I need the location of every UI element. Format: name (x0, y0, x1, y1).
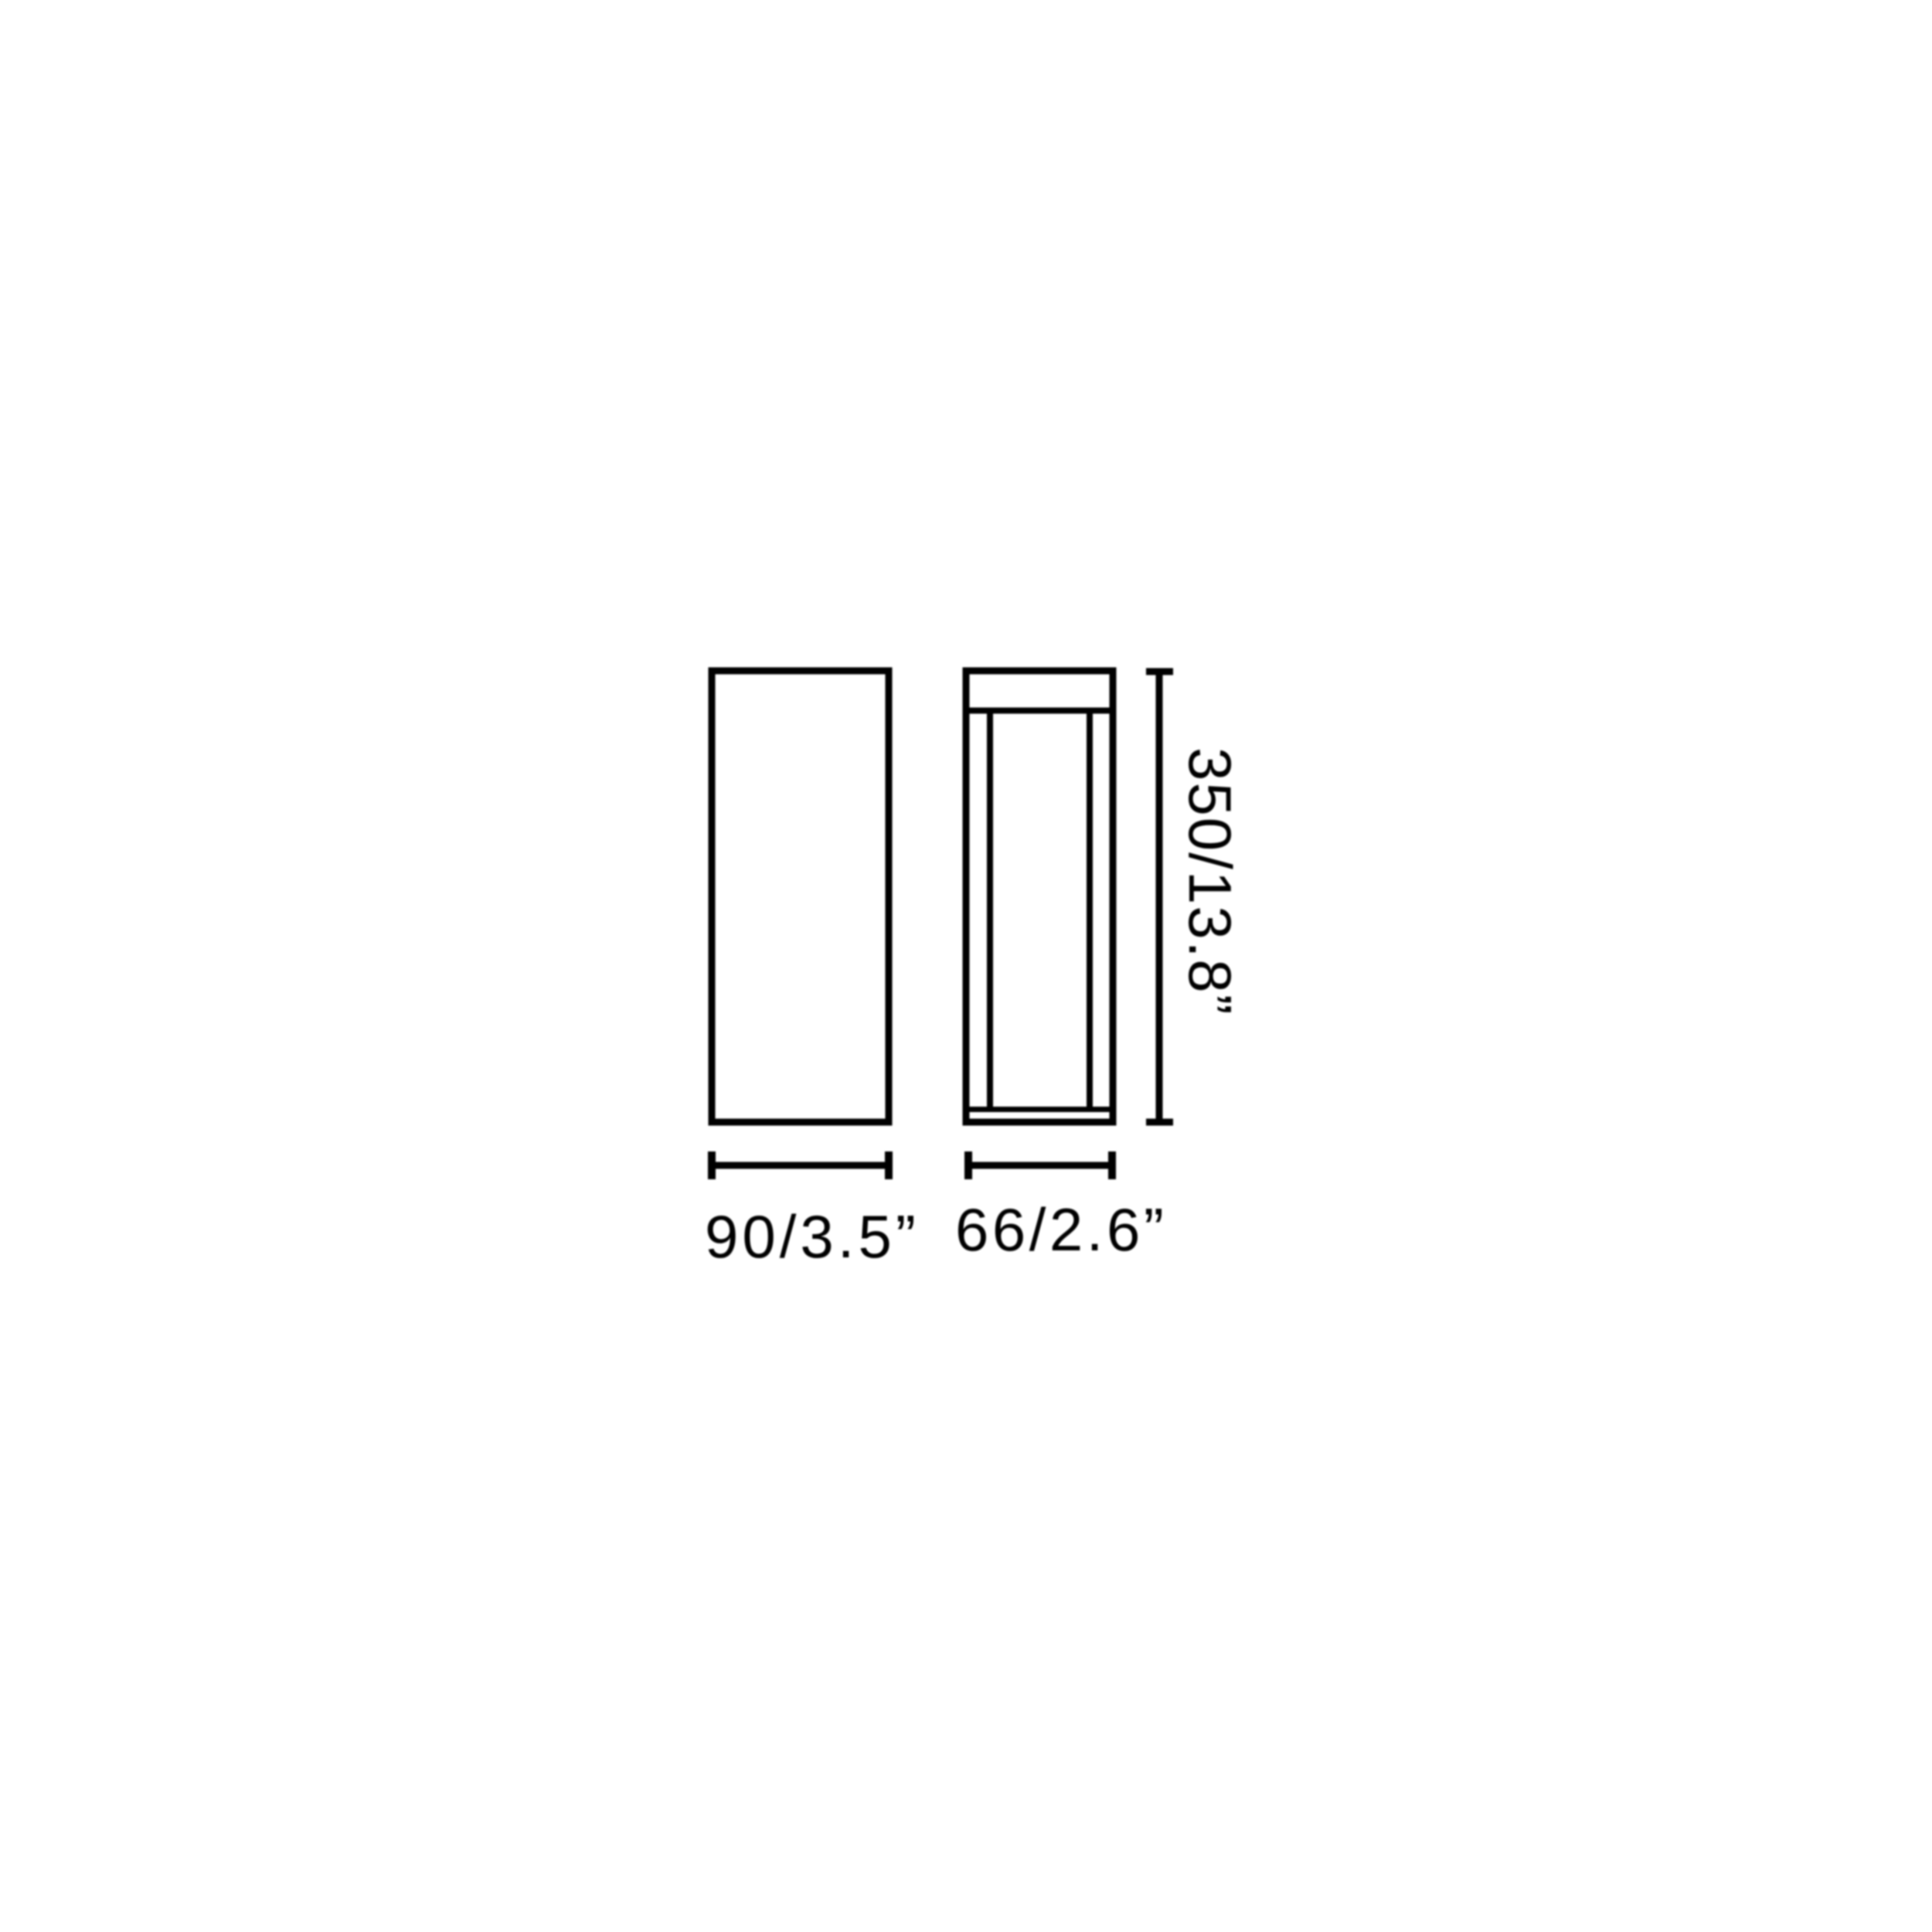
svg-text:90/3.5”: 90/3.5” (705, 1202, 920, 1270)
svg-text:350/13.8”: 350/13.8” (1176, 747, 1244, 1016)
svg-text:66/2.6”: 66/2.6” (955, 1196, 1167, 1264)
